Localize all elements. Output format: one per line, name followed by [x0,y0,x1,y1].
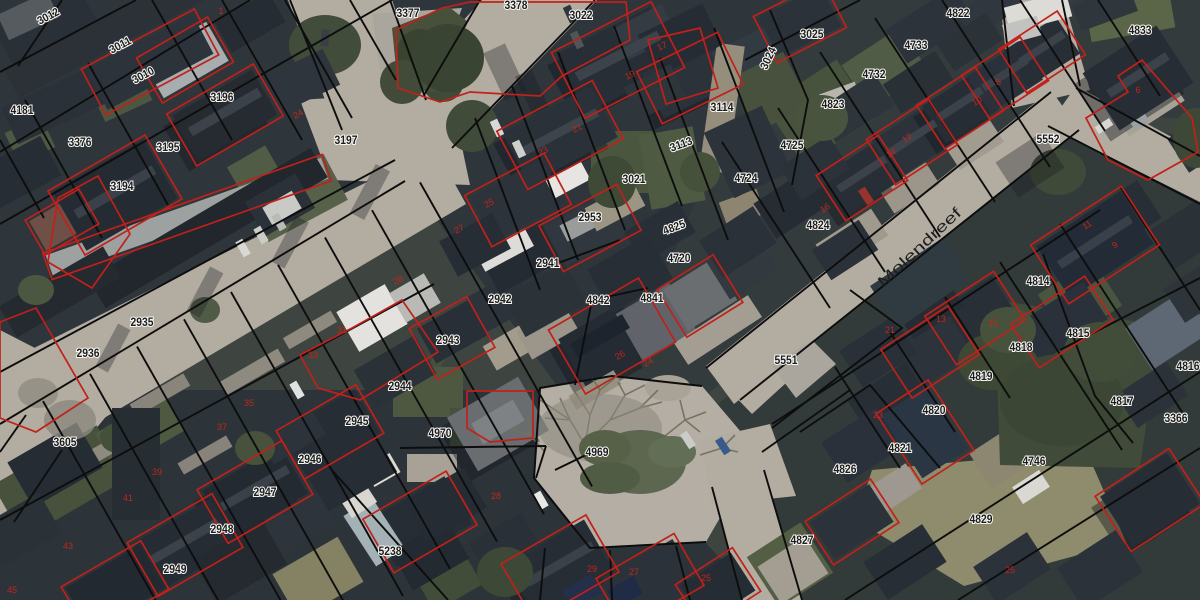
svg-text:4818: 4818 [1010,342,1034,354]
svg-text:2953: 2953 [579,212,602,224]
svg-text:4829: 4829 [970,514,993,526]
svg-text:4814: 4814 [1027,276,1051,288]
svg-text:31: 31 [337,325,347,335]
svg-text:2947: 2947 [254,487,277,499]
svg-text:43: 43 [63,541,73,551]
svg-text:5551: 5551 [775,355,799,367]
svg-text:2948: 2948 [211,524,235,536]
svg-text:27: 27 [629,567,639,577]
svg-text:5238: 5238 [379,546,403,558]
svg-text:2935: 2935 [131,317,155,329]
svg-text:3376: 3376 [69,137,92,149]
svg-text:39: 39 [152,467,162,477]
svg-text:35: 35 [244,398,254,408]
svg-text:25: 25 [1005,565,1015,575]
svg-text:3605: 3605 [54,437,78,449]
svg-text:4824: 4824 [807,220,831,232]
svg-text:2936: 2936 [77,348,100,360]
svg-text:3114: 3114 [711,102,735,114]
svg-text:3378: 3378 [505,0,529,12]
svg-text:4733: 4733 [905,40,928,52]
svg-text:4970: 4970 [429,428,452,440]
svg-text:3196: 3196 [211,92,234,104]
svg-text:4819: 4819 [970,371,993,383]
svg-text:2949: 2949 [164,564,187,576]
svg-text:28: 28 [491,491,501,501]
svg-text:3022: 3022 [570,10,593,22]
svg-text:4181: 4181 [11,105,35,117]
svg-text:3194: 3194 [111,181,135,193]
svg-text:4827: 4827 [791,535,814,547]
svg-text:3025: 3025 [801,29,825,41]
svg-text:6: 6 [1135,85,1140,95]
svg-text:4732: 4732 [863,69,886,81]
svg-text:13: 13 [936,314,946,324]
svg-text:4969: 4969 [586,447,609,459]
svg-text:4823: 4823 [822,99,845,111]
svg-text:4833: 4833 [1129,25,1152,37]
svg-text:4826: 4826 [834,464,857,476]
svg-text:3197: 3197 [335,135,358,147]
svg-text:4725: 4725 [781,140,805,152]
svg-text:2942: 2942 [489,294,512,306]
svg-text:4815: 4815 [1067,328,1091,340]
svg-text:3366: 3366 [1165,413,1188,425]
svg-text:3377: 3377 [397,8,420,20]
svg-text:4822: 4822 [947,8,970,20]
svg-text:2945: 2945 [346,416,370,428]
svg-text:2946: 2946 [299,454,322,466]
svg-text:2943: 2943 [437,335,460,347]
svg-text:45: 45 [7,585,17,595]
svg-text:2944: 2944 [389,381,413,393]
svg-text:3021: 3021 [623,174,647,186]
svg-text:37: 37 [217,422,227,432]
svg-text:4746: 4746 [1023,456,1046,468]
svg-text:1: 1 [218,6,223,16]
svg-text:21: 21 [885,325,895,335]
svg-text:25: 25 [701,573,711,583]
svg-text:4724: 4724 [735,173,759,185]
svg-text:4841: 4841 [641,293,665,305]
svg-text:15: 15 [988,318,998,328]
svg-text:41: 41 [123,493,133,503]
svg-text:23: 23 [873,410,883,420]
svg-text:33: 33 [308,350,318,360]
svg-text:4821: 4821 [889,443,913,455]
svg-text:29: 29 [587,564,597,574]
svg-text:4842: 4842 [587,295,610,307]
svg-text:5552: 5552 [1037,134,1060,146]
svg-text:4820: 4820 [923,405,946,417]
svg-text:4720: 4720 [668,253,691,265]
svg-text:3195: 3195 [157,142,181,154]
svg-text:4816: 4816 [1177,361,1200,373]
svg-text:4817: 4817 [1111,396,1134,408]
svg-text:2941: 2941 [537,258,561,270]
